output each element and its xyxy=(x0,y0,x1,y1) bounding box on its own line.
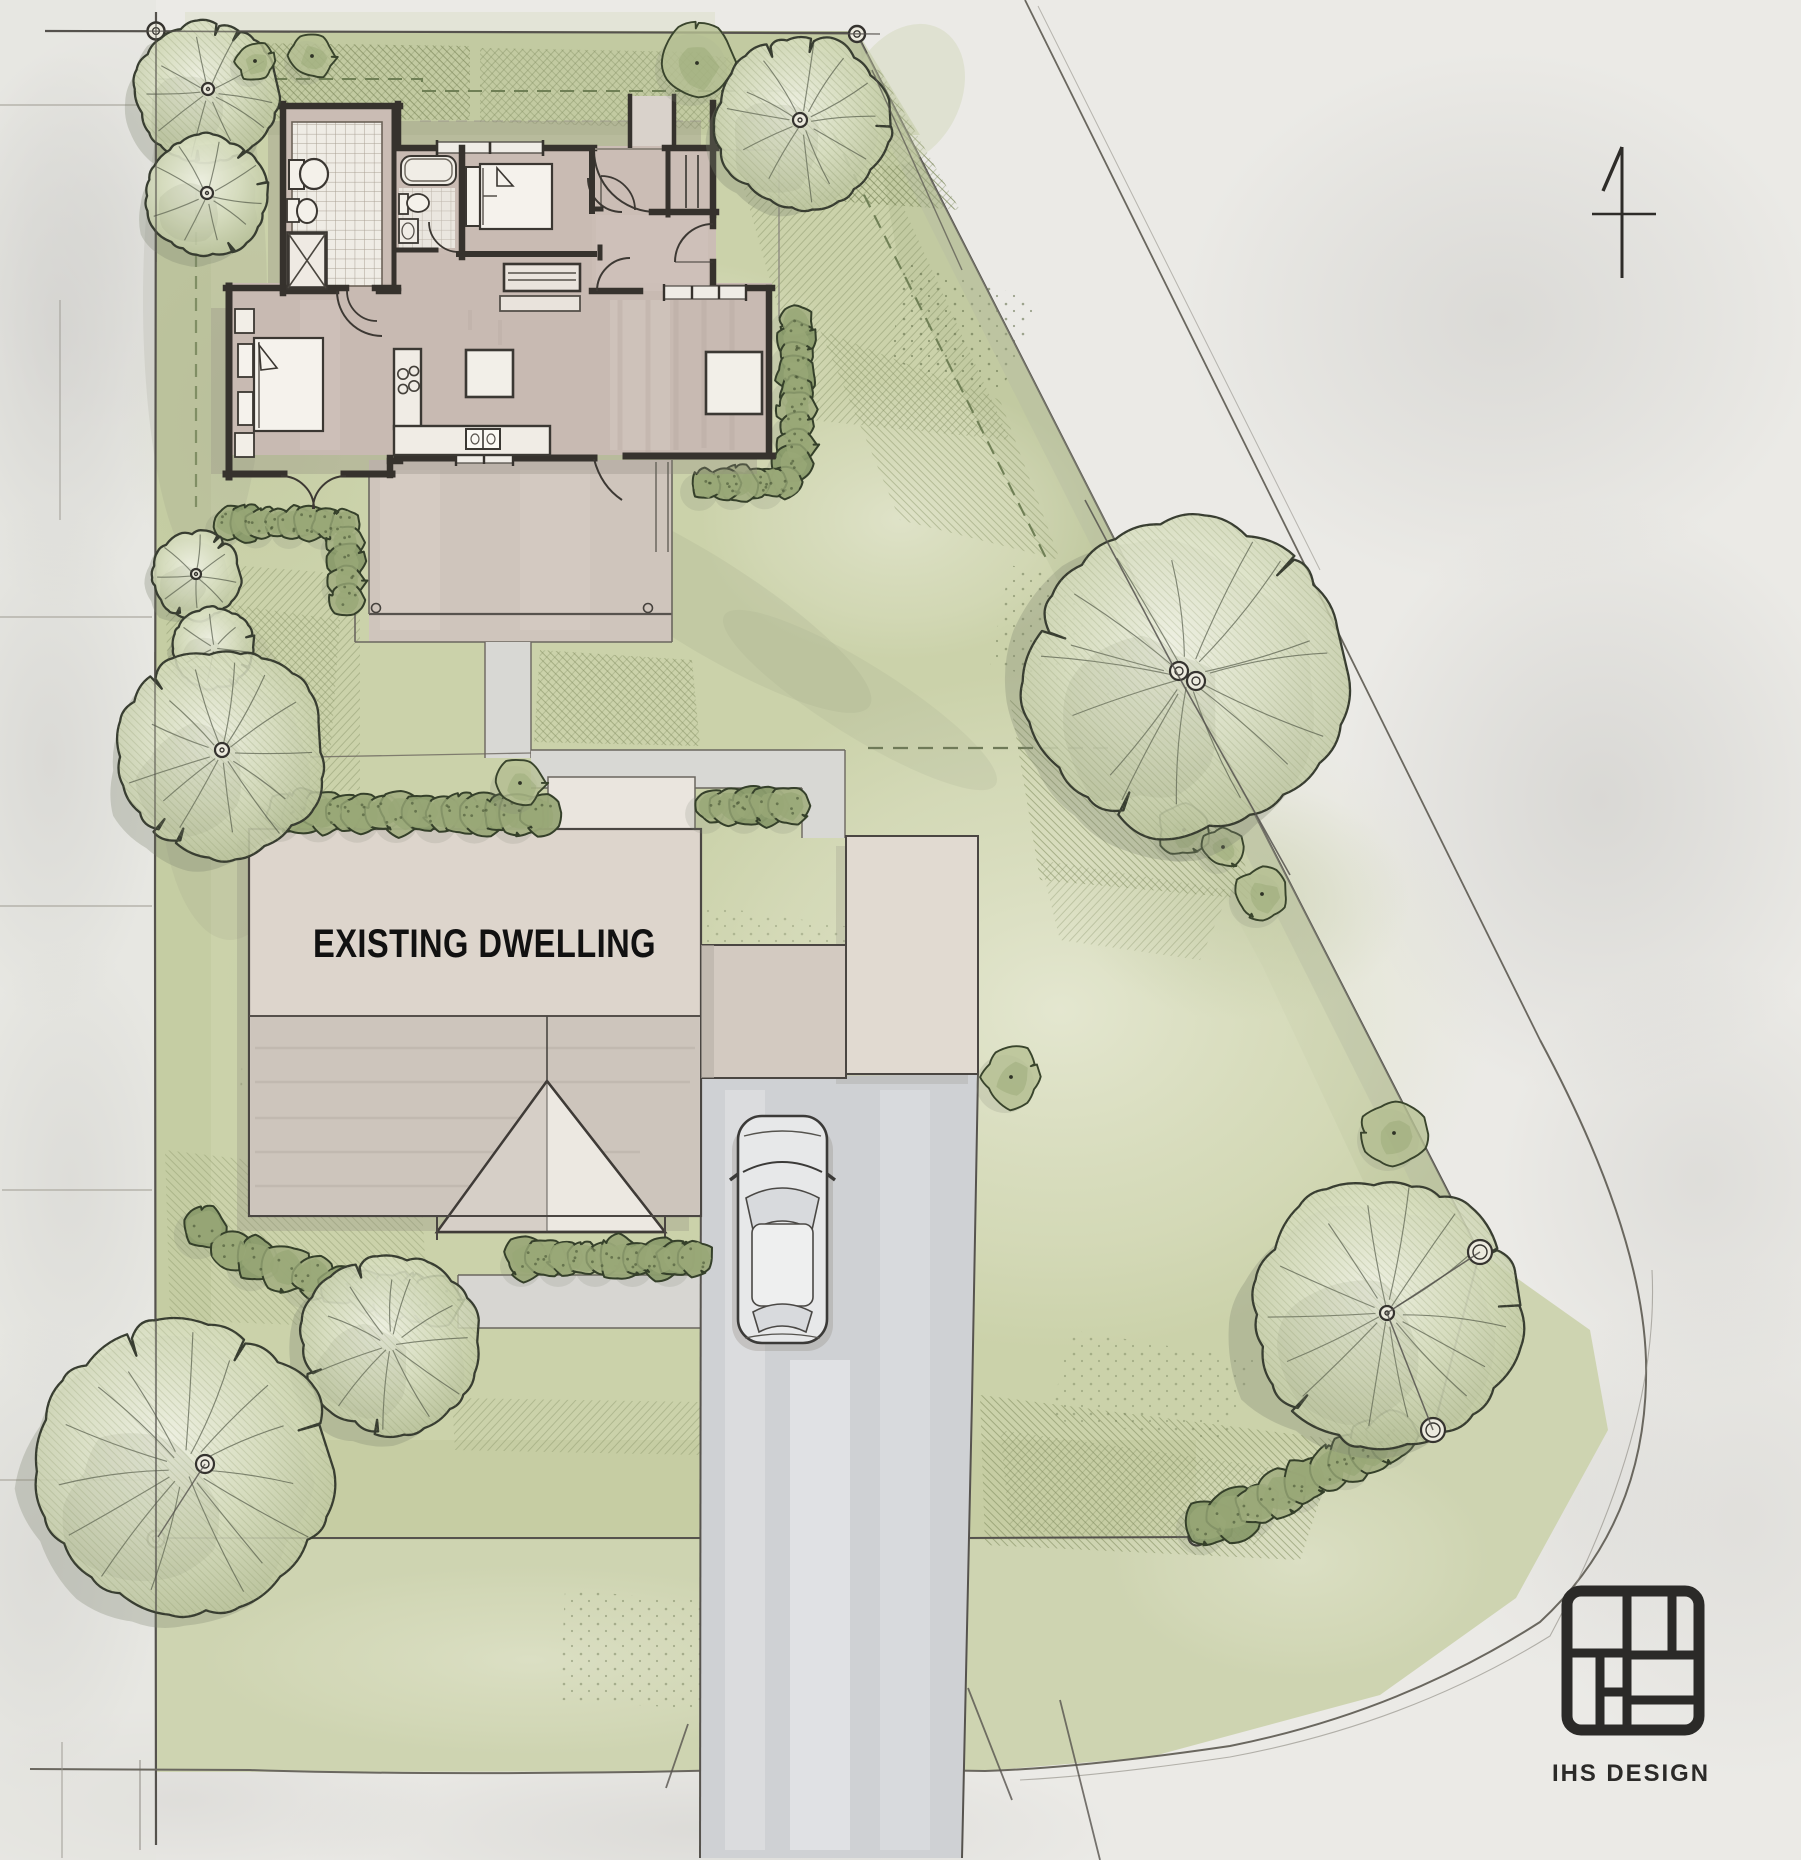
svg-text:IHS DESIGN: IHS DESIGN xyxy=(1552,1760,1710,1787)
svg-text:EXISTING DWELLING: EXISTING DWELLING xyxy=(313,922,656,966)
